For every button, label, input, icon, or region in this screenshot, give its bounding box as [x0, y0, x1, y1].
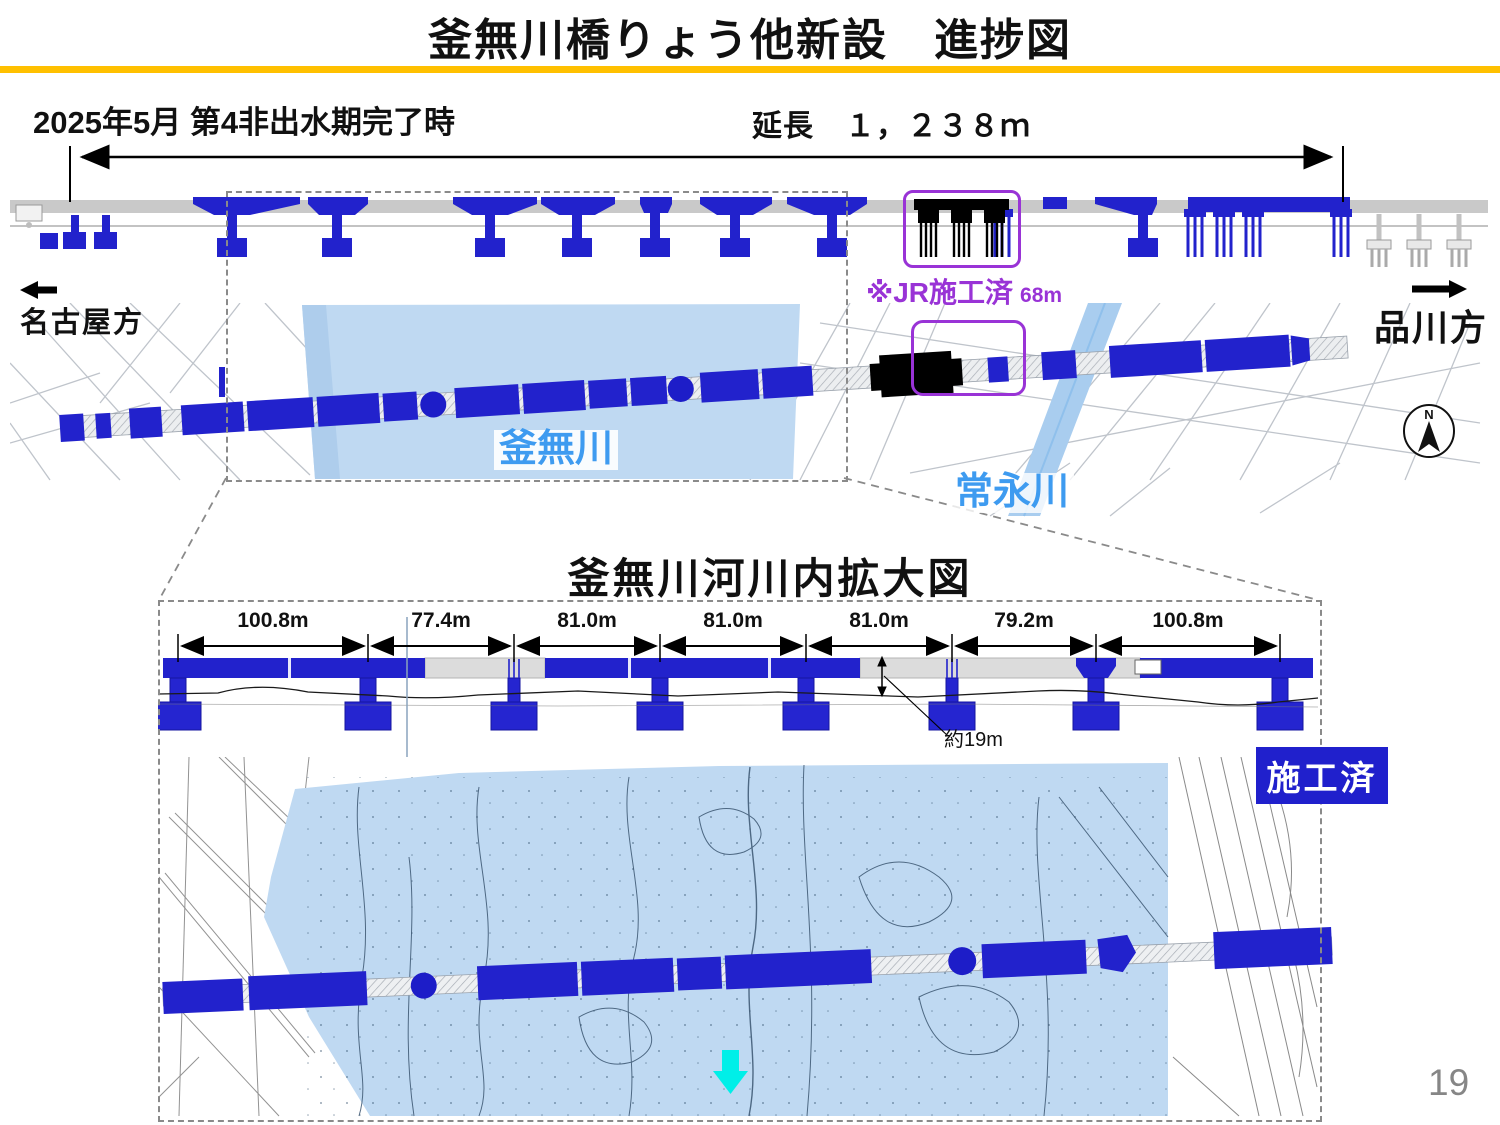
jr-completed-length: 68m: [1020, 284, 1062, 308]
nagoya-direction-arrow: [20, 281, 57, 299]
shinagawa-direction-label: 品川方: [1374, 299, 1488, 351]
pier-height-note: 約19m: [944, 723, 1003, 752]
total-length-label: 延長 １，２３８ｍ: [752, 101, 1031, 145]
completed-pile-piers: [991, 209, 1352, 257]
existing-structure-detail: [26, 222, 32, 228]
shinagawa-direction-arrow: [1412, 280, 1467, 298]
enlarged-view-box: [158, 600, 1322, 1122]
span-length-label: 100.8m: [1133, 609, 1243, 633]
compass-north-letter: N: [1424, 407, 1433, 422]
pier-marker: [219, 367, 225, 397]
jr-section-box-map: [911, 320, 1026, 396]
jr-completed-text: ※JR施工済: [866, 271, 1013, 311]
nagoya-direction-label: 名古屋方: [20, 299, 144, 341]
title-divider-bar: [0, 66, 1500, 73]
span-length-label: 81.0m: [532, 609, 642, 633]
status-label: 2025年5月 第4非出水期完了時: [33, 97, 455, 142]
jr-completed-note: ※JR施工済 68m: [866, 271, 1062, 311]
existing-structure: [16, 205, 42, 221]
span-length-label: 81.0m: [824, 609, 934, 633]
span-length-label: 77.4m: [386, 609, 496, 633]
enlarged-view-title: 釜無川河川内拡大図: [480, 545, 1060, 606]
north-compass-icon: N: [1400, 402, 1458, 460]
page-number: 19: [1428, 1062, 1469, 1104]
page-title: 釜無川橋りょう他新設 進捗図: [0, 4, 1500, 68]
tsunenaga-river-label: 常永川: [950, 473, 1074, 513]
span-length-label: 81.0m: [678, 609, 788, 633]
kamanashi-river-label: 釜無川: [494, 430, 618, 470]
completed-legend-badge: 施工済: [1256, 747, 1388, 804]
span-length-label: 100.8m: [218, 609, 328, 633]
unbuilt-pile-piers: [1367, 214, 1471, 267]
jr-section-box-elevation: [903, 190, 1021, 268]
span-length-label: 79.2m: [969, 609, 1079, 633]
slide: N 釜無川橋りょう他新設 進捗図 2025年5月 第4非出水期完了時 延長 １，…: [0, 0, 1500, 1125]
